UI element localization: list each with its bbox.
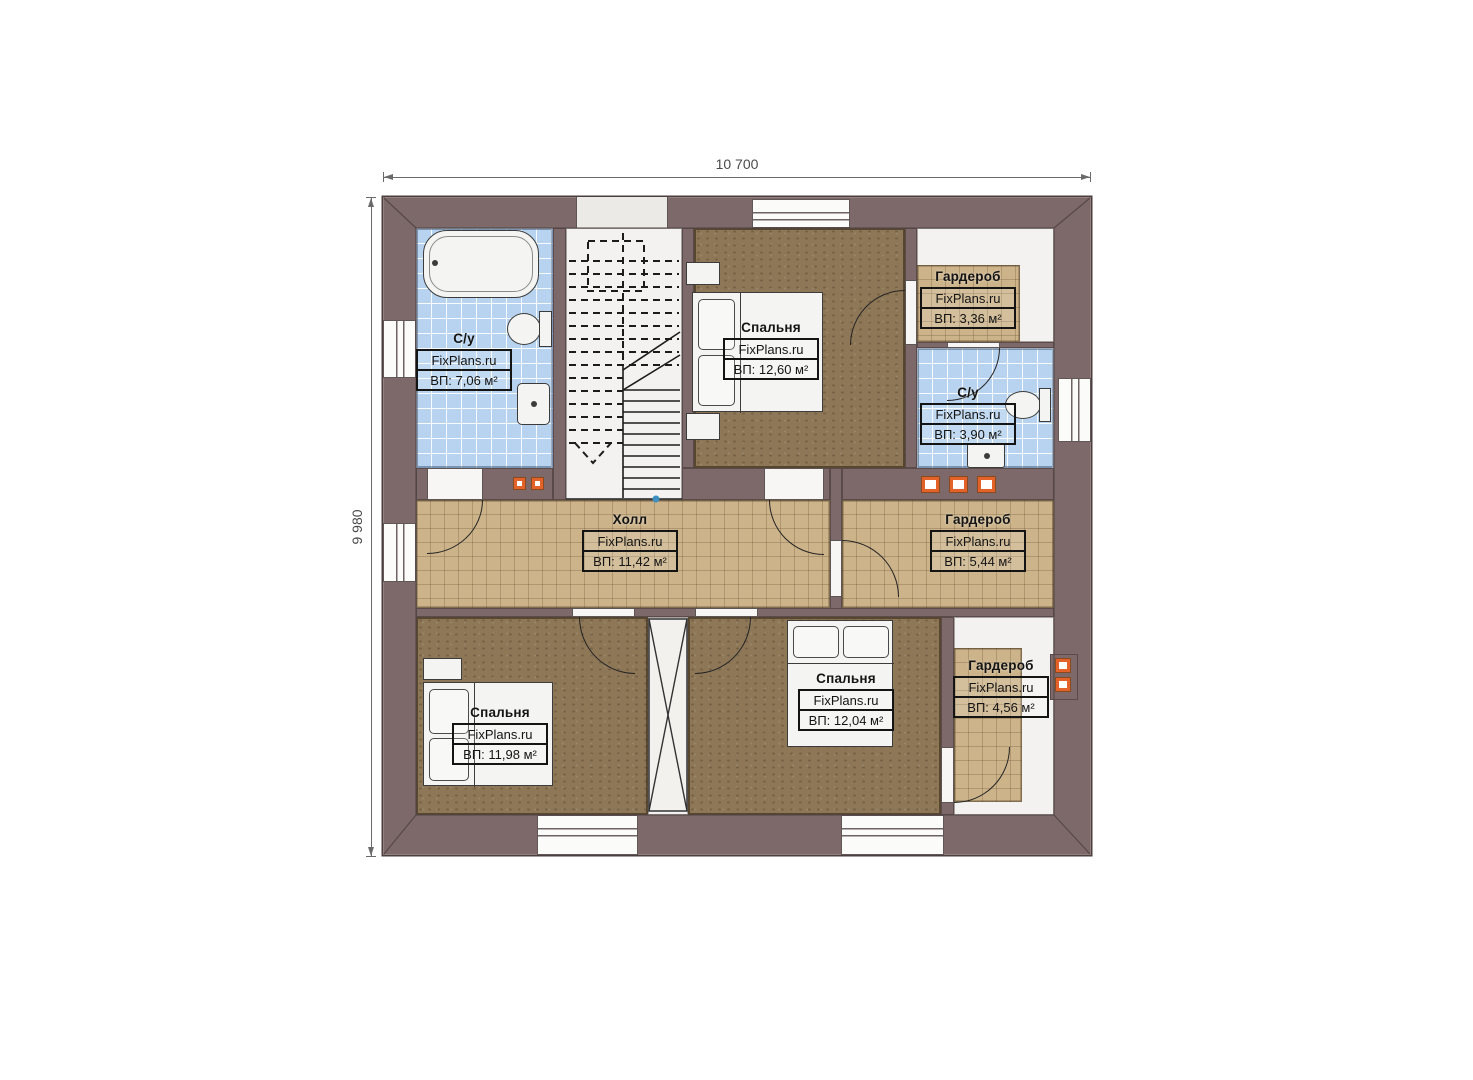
window-bottom-center (841, 815, 944, 855)
vent-block (978, 477, 995, 492)
room-name: Холл (613, 512, 648, 527)
vent-block (922, 477, 939, 492)
room-name: Спальня (470, 705, 530, 720)
room-label-hall: Холл FixPlans.ru ВП: 11,42 м² (582, 512, 678, 572)
dimension-arrow (384, 174, 393, 180)
room-area: ВП: 7,06 м² (418, 369, 510, 389)
nightstand (423, 658, 462, 680)
room-label-su-right: С/у FixPlans.ru ВП: 3,90 м² (920, 385, 1016, 445)
door-opening-suite-corridor (905, 280, 917, 345)
room-name: Гардероб (935, 269, 1000, 284)
room-area: ВП: 3,90 м² (922, 423, 1014, 443)
dimension-top-line (383, 177, 1091, 178)
vent-shaft-area (648, 617, 688, 815)
room-area: ВП: 12,04 м² (800, 709, 892, 729)
watermark-text: FixPlans.ru (922, 289, 1014, 307)
floor-plan: С/у FixPlans.ru ВП: 7,06 м² Спальня FixP… (383, 197, 1091, 855)
vent-block (1056, 678, 1070, 691)
room-info-box: FixPlans.ru ВП: 3,36 м² (920, 287, 1016, 329)
room-name: С/у (453, 331, 475, 346)
room-name: Спальня (741, 320, 801, 335)
room-label-bedroom-bottom-left: Спальня FixPlans.ru ВП: 11,98 м² (452, 705, 548, 765)
wall-topband-hall-right (842, 468, 1054, 500)
dimension-arrow (368, 198, 374, 207)
dimension-top-label: 10 700 (716, 156, 759, 172)
watermark-text: FixPlans.ru (418, 351, 510, 369)
dimension-left-line (371, 197, 372, 857)
dimension-tick (1090, 172, 1091, 182)
room-area: ВП: 4,56 м² (955, 696, 1047, 716)
room-name: С/у (957, 385, 979, 400)
dimension-left-label: 9 980 (349, 509, 365, 544)
bathtub (423, 230, 539, 298)
vent-block (514, 478, 525, 489)
sink-right (967, 443, 1005, 468)
nightstand (686, 413, 720, 440)
room-label-wardrobe-top-right: Гардероб FixPlans.ru ВП: 3,36 м² (920, 269, 1016, 329)
top-wall-opening (576, 197, 668, 228)
dimension-arrow (1081, 174, 1090, 180)
door-opening-bedroom-top-hall (764, 468, 824, 500)
room-info-box: FixPlans.ru ВП: 11,42 м² (582, 530, 678, 572)
window-left-bathroom (383, 320, 416, 378)
toilet-left-tank (539, 311, 552, 347)
window-bottom-left (537, 815, 638, 855)
door-leaf-wardrobe-br (941, 747, 954, 803)
room-label-wardrobe-right: Гардероб FixPlans.ru ВП: 5,44 м² (930, 512, 1026, 572)
room-info-box: FixPlans.ru ВП: 3,90 м² (920, 403, 1016, 445)
floor-plan-canvas: 10 700 9 980 (0, 0, 1473, 1080)
window-left-hall (383, 523, 416, 582)
wall-bedroom-suite (905, 228, 917, 468)
room-name: Спальня (816, 671, 876, 686)
room-info-box: FixPlans.ru ВП: 4,56 м² (953, 676, 1049, 718)
vent-block (1056, 659, 1070, 672)
bed-fold-line (788, 663, 894, 664)
room-area: ВП: 12,60 м² (725, 358, 817, 378)
sink-left (517, 383, 550, 425)
dimension-arrow (368, 847, 374, 856)
watermark-text: FixPlans.ru (725, 340, 817, 358)
room-label-su-left: С/у FixPlans.ru ВП: 7,06 м² (416, 331, 512, 391)
watermark-text: FixPlans.ru (584, 532, 676, 550)
dimension-tick (366, 856, 376, 857)
room-area: ВП: 3,36 м² (922, 307, 1014, 327)
toilet-right-tank (1039, 388, 1051, 422)
wall-bathroom-stairs (553, 228, 566, 500)
staircase-area (566, 228, 682, 500)
watermark-text: FixPlans.ru (922, 405, 1014, 423)
nightstand (686, 262, 720, 285)
window-right-su (1058, 378, 1091, 442)
vent-block (950, 477, 967, 492)
room-label-bedroom-bottom-center: Спальня FixPlans.ru ВП: 12,04 м² (798, 671, 894, 731)
room-info-box: FixPlans.ru ВП: 12,60 м² (723, 338, 819, 380)
pillow (843, 626, 889, 658)
door-opening-bedroom-bc (695, 608, 758, 617)
room-info-box: FixPlans.ru ВП: 12,04 м² (798, 689, 894, 731)
pillow (793, 626, 839, 658)
room-info-box: FixPlans.ru ВП: 7,06 м² (416, 349, 512, 391)
door-opening-bedroom-bl (572, 608, 635, 617)
room-label-bedroom-top: Спальня FixPlans.ru ВП: 12,60 м² (723, 320, 819, 380)
vent-block (532, 478, 543, 489)
room-area: ВП: 11,98 м² (454, 743, 546, 763)
room-label-wardrobe-bottom-right: Гардероб FixPlans.ru ВП: 4,56 м² (953, 658, 1049, 718)
room-area: ВП: 11,42 м² (584, 550, 676, 570)
watermark-text: FixPlans.ru (454, 725, 546, 743)
room-info-box: FixPlans.ru ВП: 5,44 м² (930, 530, 1026, 572)
room-name: Гардероб (968, 658, 1033, 673)
door-leaf-wardrobe-right (830, 540, 842, 597)
door-opening-bathroom-left (427, 468, 483, 500)
toilet-left-bowl (507, 313, 541, 345)
window-top (752, 199, 850, 228)
room-name: Гардероб (945, 512, 1010, 527)
watermark-text: FixPlans.ru (800, 691, 892, 709)
room-area: ВП: 5,44 м² (932, 550, 1024, 570)
watermark-text: FixPlans.ru (932, 532, 1024, 550)
watermark-text: FixPlans.ru (955, 678, 1047, 696)
room-info-box: FixPlans.ru ВП: 11,98 м² (452, 723, 548, 765)
